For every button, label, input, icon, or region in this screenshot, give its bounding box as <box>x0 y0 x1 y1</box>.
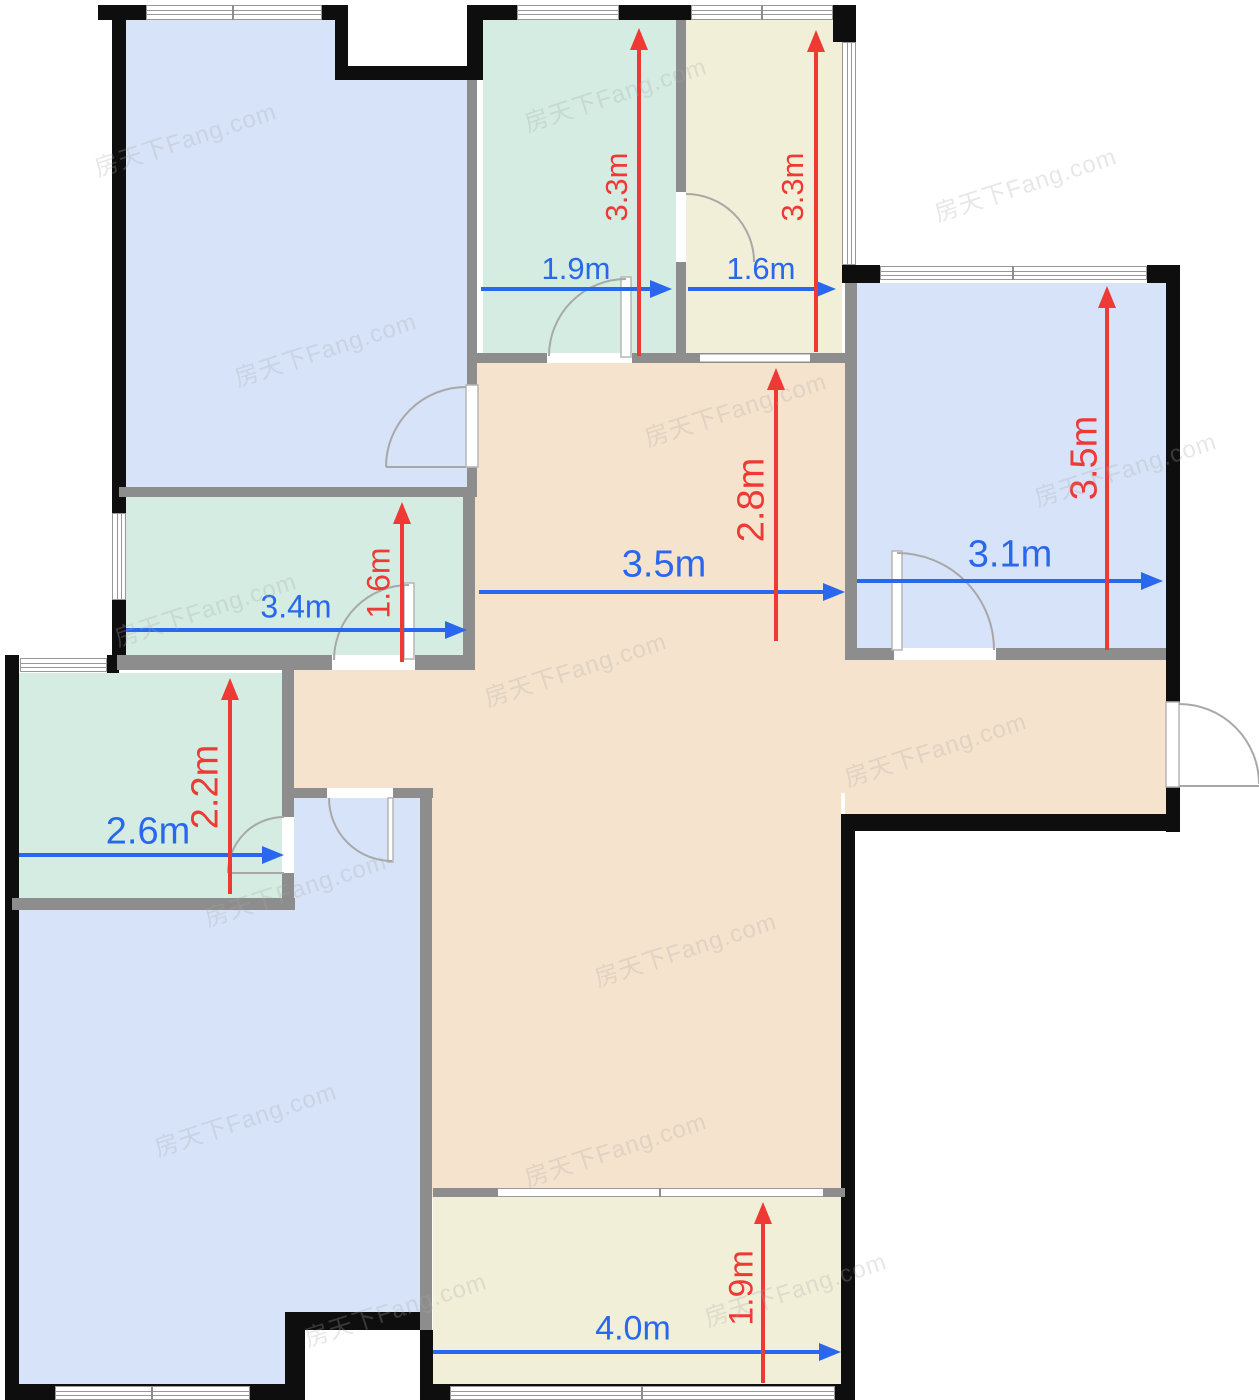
arrow-right-icon <box>1141 572 1163 590</box>
arrow-right-icon <box>650 280 672 298</box>
dim-north-room-height: 3.3m <box>599 153 635 222</box>
dim-kitchen-height: 1.6m <box>361 547 398 618</box>
arrow-up-icon <box>1098 286 1116 308</box>
arrow-up-icon <box>630 28 648 50</box>
dim-line-north-room-width <box>481 287 652 291</box>
dim-kitchen-width: 3.4m <box>260 589 331 626</box>
dim-line-bathroom-height <box>228 698 232 894</box>
floor-plan: 3.4m 1.6m 2.6m 2.2m 1.9m 3.3m 1.6m 3.3m … <box>0 0 1259 1400</box>
arrow-up-icon <box>807 30 825 52</box>
dim-balcony-height: 1.9m <box>723 1250 762 1326</box>
dim-bathroom-height: 2.2m <box>185 745 228 829</box>
dim-hall-width: 3.5m <box>622 544 706 587</box>
dim-line-hall-height <box>774 388 778 641</box>
dim-north-bath-width: 1.6m <box>727 251 796 287</box>
dim-line-balcony-height <box>761 1222 765 1383</box>
dim-north-bath-height: 3.3m <box>775 153 811 222</box>
dim-hall-height: 2.8m <box>731 458 774 542</box>
arrow-right-icon <box>823 583 845 601</box>
dim-line-north-bath-height <box>814 50 818 352</box>
dim-balcony-width: 4.0m <box>595 1310 671 1349</box>
dim-line-kitchen-width <box>126 628 447 632</box>
dim-line-north-room-height <box>637 48 641 356</box>
dim-bedroom-right-width: 3.1m <box>968 534 1052 577</box>
dim-north-room-width: 1.9m <box>542 251 611 287</box>
arrow-right-icon <box>262 846 284 864</box>
arrow-up-icon <box>754 1202 772 1224</box>
arrow-up-icon <box>393 502 411 524</box>
arrow-right-icon <box>445 621 467 639</box>
arrow-right-icon <box>819 1343 841 1361</box>
arrow-up-icon <box>767 368 785 390</box>
dim-line-bedroom-right-width <box>857 579 1143 583</box>
dim-line-kitchen-height <box>400 522 404 662</box>
arrow-up-icon <box>221 678 239 700</box>
dim-bedroom-right-height: 3.5m <box>1064 416 1107 500</box>
dim-line-north-bath-width <box>688 287 816 291</box>
dim-bathroom-width: 2.6m <box>106 811 190 854</box>
